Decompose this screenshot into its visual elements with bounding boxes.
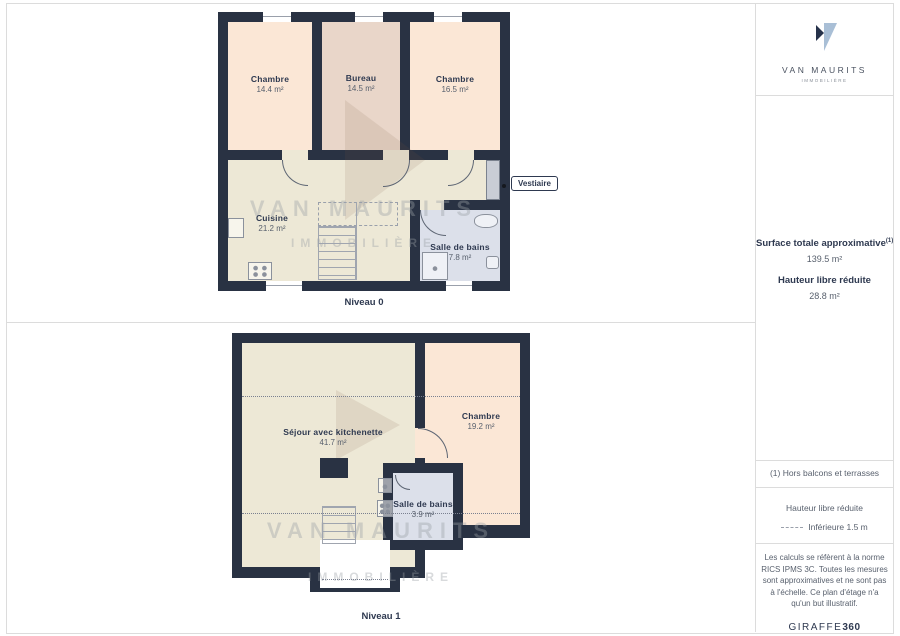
disclaimer-text: Les calculs se réfèrent à la norme RICS … — [761, 552, 888, 610]
footnote: (1) Hors balcons et terrasses — [756, 468, 893, 478]
surface-title: Surface totale approximative(1) — [756, 238, 893, 249]
giraffe-360-text: 360 — [842, 622, 860, 633]
level0-caption: Niveau 0 — [218, 297, 510, 308]
legend-block: Hauteur libre réduite Inférieure 1.5 m — [756, 503, 893, 532]
sidebar-section-divider — [755, 460, 893, 461]
room-label: Salle de bains 3.9 m² — [393, 499, 453, 519]
room-area: 19.2 m² — [462, 422, 500, 431]
door-opening — [448, 150, 474, 160]
legend-item: Inférieure 1.5 m — [808, 522, 868, 532]
surface-value: 139.5 m² — [756, 254, 893, 264]
reduced-height-title: Hauteur libre réduite — [756, 275, 893, 286]
level1-caption: Niveau 1 — [232, 611, 530, 622]
room-area: 3.9 m² — [393, 510, 453, 519]
floorplan-level-0: VAN MAURITS IMMOBILIÈRE Vestiaire Chambr… — [218, 12, 510, 291]
room-label: Salle de bains 7.8 m² — [430, 242, 490, 262]
reduced-height-value: 28.8 m² — [756, 291, 893, 301]
stove-icon — [248, 262, 272, 280]
door-opening — [282, 150, 308, 160]
vestiaire-tag: Vestiaire — [511, 176, 558, 191]
floorplan-sheet: VAN MAURITS IMMOBILIÈRE Vestiaire Chambr… — [0, 0, 900, 636]
logo-title: VAN MAURITS — [756, 65, 893, 75]
legend-row: Inférieure 1.5 m — [756, 522, 893, 532]
room-label: Bureau 14.5 m² — [346, 73, 377, 93]
room-name: Salle de bains — [393, 499, 453, 509]
van-maurits-logo-icon — [809, 22, 841, 52]
stairs-dotted-line — [322, 579, 388, 580]
room-label: Chambre 16.5 m² — [436, 74, 474, 94]
window — [355, 12, 383, 22]
brand-logo-block: VAN MAURITS IMMOBILIÈRE — [756, 22, 893, 83]
giraffe360-brand: GIRAFFE360 — [761, 622, 888, 633]
room-label: Séjour avec kitchenette 41.7 m² — [283, 427, 383, 447]
room-name: Bureau — [346, 73, 377, 83]
stairs — [318, 226, 356, 280]
stairs — [322, 506, 356, 544]
vestiaire-closet — [486, 160, 500, 200]
window — [263, 12, 291, 22]
room-name: Cuisine — [256, 213, 288, 223]
watermark-text: IMMOBILIÈRE — [291, 236, 437, 250]
watermark-text: VAN MAURITS — [267, 518, 495, 544]
stove-icon — [377, 500, 393, 517]
sidebar-divider — [755, 3, 756, 632]
disclaimer-block: Les calculs se réfèrent à la norme RICS … — [761, 552, 888, 633]
sink-icon — [378, 478, 392, 493]
floorplan-level-1: VAN MAURITS IMMOBILIÈRE Séjour avec kitc… — [232, 333, 530, 595]
sidebar-section-divider — [755, 543, 893, 544]
room-area: 16.5 m² — [436, 85, 474, 94]
room-name: Chambre — [251, 74, 289, 84]
room-area: 14.4 m² — [251, 85, 289, 94]
room-area: 21.2 m² — [256, 224, 288, 233]
legend-title: Hauteur libre réduite — [756, 503, 893, 513]
window — [446, 281, 472, 291]
room-area: 41.7 m² — [283, 438, 383, 447]
logo-subtitle: IMMOBILIÈRE — [756, 78, 893, 83]
surface-summary: Surface totale approximative(1) 139.5 m²… — [756, 238, 893, 301]
room-name: Chambre — [436, 74, 474, 84]
stairs-dashed-outline — [318, 202, 398, 226]
sidebar-section-divider — [755, 487, 893, 488]
room-name: Salle de bains — [430, 242, 490, 252]
stairs-edge — [356, 202, 357, 280]
room-label: Chambre 19.2 m² — [462, 411, 500, 431]
room-name: Chambre — [462, 411, 500, 421]
room-area: 14.5 m² — [346, 84, 377, 93]
window — [266, 281, 302, 291]
sidebar-section-divider — [755, 95, 893, 96]
room-label: Cuisine 21.2 m² — [256, 213, 288, 233]
room-name: Séjour avec kitchenette — [283, 427, 383, 437]
giraffe-text: GIRAFFE — [788, 622, 842, 633]
watermark-text: IMMOBILIÈRE — [308, 570, 454, 584]
room-label: Chambre 14.4 m² — [251, 74, 289, 94]
surface-note-ref: (1) — [886, 238, 893, 244]
reduced-height-line — [242, 513, 520, 514]
window — [434, 12, 462, 22]
levels-divider — [6, 322, 755, 323]
chimney-block — [320, 458, 348, 478]
counter-icon — [228, 218, 244, 238]
room-area: 7.8 m² — [430, 253, 490, 262]
surface-title-text: Surface totale approximative — [756, 238, 886, 249]
vestiaire-marker-dot — [502, 184, 506, 188]
toilet-icon — [474, 214, 498, 228]
reduced-height-line — [242, 396, 520, 397]
dashed-line-icon — [781, 527, 803, 528]
